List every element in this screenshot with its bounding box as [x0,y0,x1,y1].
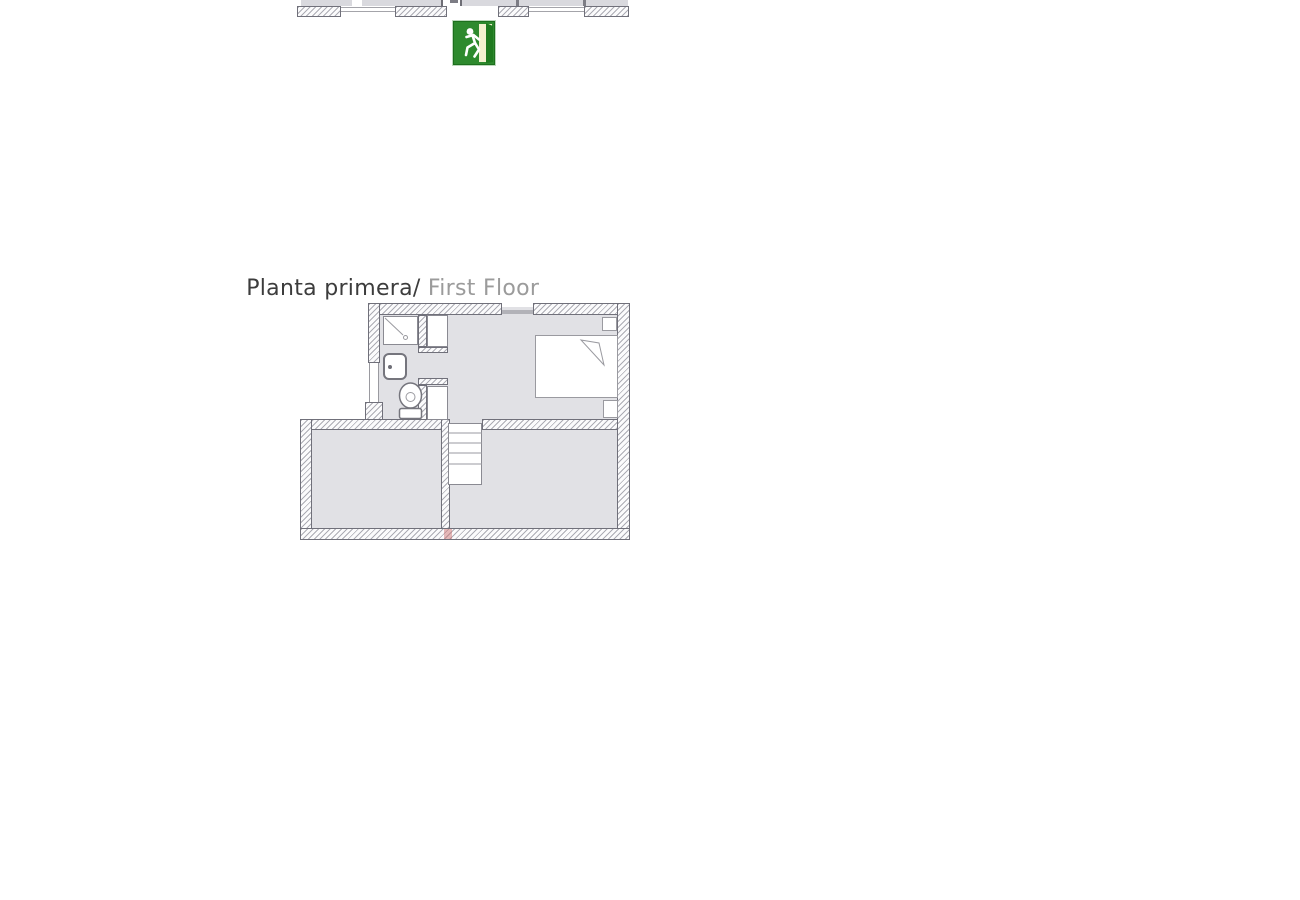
wall-right [617,303,630,540]
sink-faucet-dot [388,365,392,369]
wall-top-right [533,303,627,315]
wall-bathroom-left [368,303,380,363]
terrace-door-opening [502,310,533,314]
bathroom-window [369,363,379,402]
wall-segment [395,6,447,17]
cropped-floor-band [301,0,628,6]
wall-left [300,419,312,540]
door-leaf [427,315,448,347]
wall-segment [297,6,341,17]
plan-title-english: First Floor [421,276,540,301]
wall-segment [584,6,629,17]
wall-lowerroom-top [300,419,446,430]
nightstand [603,400,618,418]
sink-icon [383,353,407,380]
wall-segment [498,6,529,17]
red-door-mark [444,529,452,539]
plan-title-spanish: Planta primera/ [246,276,420,301]
bed [535,335,618,398]
door-leaf [427,386,448,420]
bed-fold-mark [536,336,617,397]
emergency-exit-icon [452,20,496,66]
wall-opening [352,0,362,6]
floor-plan-page: Planta primera/ First Floor [0,0,1300,900]
toilet-icon [398,382,423,420]
nightstand [602,317,617,331]
window [529,7,584,12]
shower-icon [383,316,418,345]
wall-shower-side [418,315,427,347]
wall-bottom [300,528,630,540]
window [341,7,395,12]
door-leaf-mark [450,0,458,3]
wall-top-left [368,303,502,315]
staircase [448,423,482,485]
wall-bedroom-bottom [482,419,618,430]
wall-shower-bottom [418,347,448,353]
